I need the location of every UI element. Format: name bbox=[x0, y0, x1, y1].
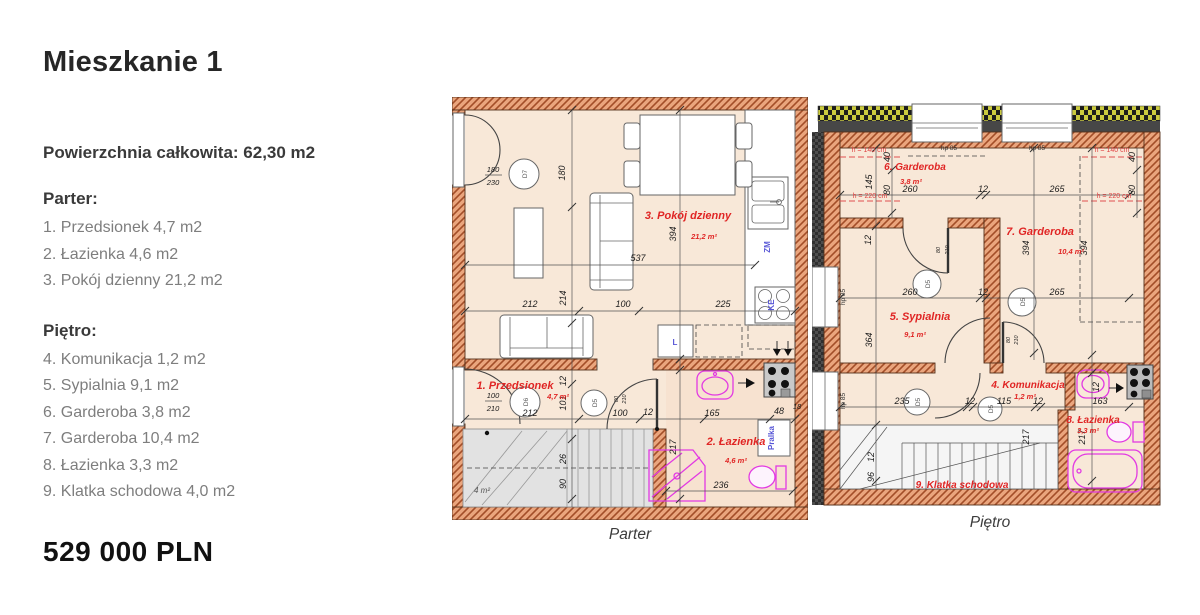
dim-label: 12 bbox=[978, 184, 988, 194]
door-label: D5 bbox=[988, 404, 995, 413]
window-icon bbox=[912, 104, 982, 142]
dim-label: 217 bbox=[1021, 429, 1031, 446]
door-label: D5 bbox=[592, 398, 599, 407]
dim-label: 165 bbox=[704, 408, 720, 418]
door-dim: 180 bbox=[487, 165, 500, 174]
dim-label: 260 bbox=[901, 287, 917, 297]
door-dim: 210 bbox=[622, 393, 628, 404]
door-dim: 80 bbox=[1006, 336, 1012, 343]
chair-icon bbox=[736, 123, 752, 149]
dim-label: 212 bbox=[521, 408, 537, 418]
dim-label: 90 bbox=[558, 479, 568, 489]
dim-label: 12 bbox=[866, 452, 876, 462]
room-area: 10,4 m² bbox=[1058, 247, 1084, 256]
room-name: 4. Komunikacja bbox=[990, 380, 1065, 391]
dim-label: 180 bbox=[557, 165, 567, 180]
dim-label: 212 bbox=[521, 299, 537, 309]
window-icon bbox=[1002, 104, 1072, 142]
dim-label: 225 bbox=[714, 299, 731, 309]
dim-label: 12 bbox=[643, 407, 653, 417]
window-icon bbox=[812, 372, 838, 430]
door-dim: 210 bbox=[1014, 334, 1020, 345]
room-area: 9,1 m² bbox=[904, 330, 926, 339]
floorplan-pietro[interactable]: hp 85 hp 85 hp 85 hp 85 bbox=[812, 100, 1168, 512]
floorplan-pietro-drawing: hp 85 hp 85 hp 85 hp 85 bbox=[812, 100, 1168, 512]
dim-label: 394 bbox=[668, 226, 678, 241]
room-list-item: 7. Garderoba 10,4 m2 bbox=[43, 426, 433, 453]
price-label: 529 000 PLN bbox=[43, 536, 433, 568]
room-area: 4,7 m² bbox=[546, 392, 569, 401]
dim-label: 12 bbox=[558, 376, 568, 386]
door-label: D7 bbox=[522, 169, 529, 178]
room-name: 3. Pokój dzienny bbox=[645, 210, 732, 222]
room-list-item: 5. Sypialnia 9,1 m2 bbox=[43, 373, 433, 400]
door-label: D5 bbox=[915, 397, 922, 406]
balcony-door-icon bbox=[453, 113, 464, 187]
washing-machine-label: Pralka bbox=[767, 425, 776, 450]
table-icon bbox=[514, 208, 543, 278]
door-dim: 210 bbox=[486, 404, 500, 413]
dim-label: 265 bbox=[1048, 287, 1065, 297]
room-list-item: 4. Komunikacja 1,2 m2 bbox=[43, 347, 433, 374]
door-dim: 230 bbox=[486, 178, 500, 187]
entry-door-icon bbox=[453, 367, 464, 426]
room-area: 21,2 m² bbox=[690, 232, 717, 241]
dim-label: 236 bbox=[712, 480, 728, 490]
dim-label: 364 bbox=[864, 332, 874, 347]
cooker-label: KE bbox=[767, 299, 776, 311]
room-list-item: 1. Przedsionek 4,7 m2 bbox=[43, 215, 433, 242]
chair-icon bbox=[624, 161, 640, 187]
total-area-label: Powierzchnia całkowita: 62,30 m2 bbox=[43, 143, 433, 163]
room-list-item: 8. Łazienka 3,3 m2 bbox=[43, 453, 433, 480]
room-area: 3,3 m² bbox=[1077, 426, 1099, 435]
dim-label: 537 bbox=[630, 253, 646, 263]
room-name: 6. Garderoba bbox=[884, 162, 946, 173]
dim-label: 217 bbox=[668, 439, 678, 456]
door-dim: 80 bbox=[936, 246, 942, 253]
room-name: 8. Łazienka bbox=[1066, 415, 1120, 426]
stairs-area-label: 4 m² bbox=[474, 486, 490, 495]
section-pietro: Piętro: 4. Komunikacja 1,2 m2 5. Sypialn… bbox=[43, 321, 433, 506]
room-name: 7. Garderoba bbox=[1006, 226, 1074, 238]
dim-label: 145 bbox=[864, 174, 874, 190]
door-label: D5 bbox=[1020, 297, 1027, 306]
chimney-icon bbox=[764, 363, 795, 397]
room-list-item: 6. Garderoba 3,8 m2 bbox=[43, 400, 433, 427]
room-name: 9. Klatka schodowa bbox=[916, 480, 1009, 491]
dim-label: 12 bbox=[863, 235, 873, 245]
dim-label: 100 bbox=[615, 299, 630, 309]
room-list-item: 3. Pokój dzienny 21,2 m2 bbox=[43, 268, 433, 295]
room-list-item: 9. Klatka schodowa 4,0 m2 bbox=[43, 479, 433, 506]
dim-label: 394 bbox=[1021, 240, 1031, 255]
roof-height-label: h = 140 cm bbox=[1095, 147, 1130, 154]
window-icon bbox=[812, 267, 838, 327]
chair-icon bbox=[736, 161, 752, 187]
dim-label: 235 bbox=[893, 396, 910, 406]
room-area: 1,2 m² bbox=[1014, 392, 1036, 401]
room-name: 5. Sypialnia bbox=[890, 311, 951, 323]
chimney-icon bbox=[1127, 365, 1153, 399]
sofa-icon bbox=[500, 315, 593, 358]
room-name: 1. Przedsionek bbox=[476, 380, 554, 392]
window-sill-label: hp 85 bbox=[941, 145, 958, 152]
dishwasher-label: ZM bbox=[763, 241, 772, 253]
section-header-pietro: Piętro: bbox=[43, 321, 433, 341]
dim-label: 100 bbox=[612, 408, 627, 418]
door-dim: 80 bbox=[614, 395, 620, 402]
floorplan-parter[interactable]: 4 m² ZM KE L bbox=[452, 97, 808, 520]
door-label: D6 bbox=[523, 397, 530, 406]
floorplan-parter-drawing: 4 m² ZM KE L bbox=[452, 97, 808, 520]
dim-label: 12 bbox=[978, 287, 988, 297]
dining-table-icon bbox=[640, 115, 735, 195]
door-dim: 210 bbox=[945, 244, 951, 255]
dim-label: 163 bbox=[1092, 396, 1107, 406]
sofa-icon bbox=[590, 193, 633, 290]
listing-sidebar: Mieszkanie 1 Powierzchnia całkowita: 62,… bbox=[43, 46, 433, 568]
room-area: 4,6 m² bbox=[724, 456, 747, 465]
room-list-item: 2. Łazienka 4,6 m2 bbox=[43, 242, 433, 269]
door-dim: 100 bbox=[487, 391, 500, 400]
dim-label: 214 bbox=[558, 290, 568, 306]
roof-height-label: h = 220 cm bbox=[1097, 193, 1132, 200]
fridge-label: L bbox=[673, 338, 678, 347]
caption-parter: Parter bbox=[452, 526, 808, 544]
roof-height-label: h = 220 cm bbox=[853, 193, 888, 200]
caption-pietro: Piętro bbox=[812, 514, 1168, 532]
dim-label: 12 bbox=[965, 396, 975, 406]
dim-label: 18 bbox=[793, 402, 802, 411]
parter-stairs: 4 m² bbox=[463, 429, 653, 507]
kitchen-sink-icon bbox=[748, 177, 788, 229]
room-area: 3,8 m² bbox=[900, 177, 922, 186]
section-header-parter: Parter: bbox=[43, 189, 433, 209]
page-title: Mieszkanie 1 bbox=[43, 46, 433, 79]
dim-label: 265 bbox=[1048, 184, 1065, 194]
chair-icon bbox=[624, 123, 640, 149]
dim-label: 96 bbox=[866, 472, 876, 482]
door-label: D5 bbox=[925, 279, 932, 288]
section-parter: Parter: 1. Przedsionek 4,7 m2 2. Łazienk… bbox=[43, 189, 433, 295]
dim-label: 48 bbox=[774, 406, 784, 416]
room-name: 2. Łazienka bbox=[706, 436, 766, 448]
roof-height-label: h = 140 cm bbox=[852, 147, 887, 154]
dim-label: 115 bbox=[997, 396, 1012, 406]
dim-label: 26 bbox=[558, 454, 568, 465]
dim-label: 12 bbox=[1091, 382, 1101, 392]
